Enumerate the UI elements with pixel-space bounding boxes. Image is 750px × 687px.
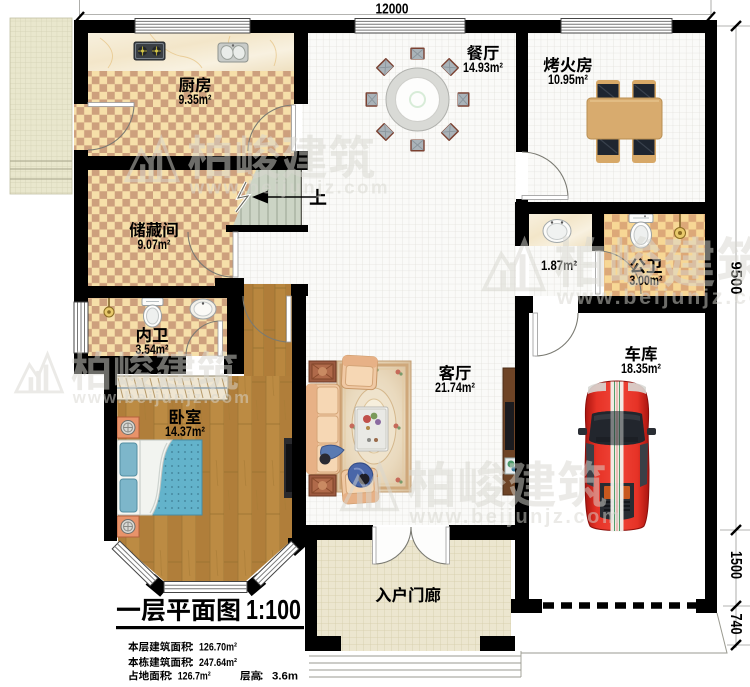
svg-text:14.37m²: 14.37m²: [165, 424, 205, 439]
svg-text:www.beijunjz.com: www.beijunjz.com: [72, 388, 251, 407]
svg-text:247.64m²: 247.64m²: [199, 657, 237, 669]
svg-text:3.6m: 3.6m: [272, 671, 298, 683]
svg-text:10.95m²: 10.95m²: [548, 72, 588, 87]
svg-text:1500: 1500: [727, 551, 744, 579]
svg-text:9.07m²: 9.07m²: [138, 237, 171, 252]
svg-text:14.93m²: 14.93m²: [463, 60, 503, 75]
svg-text:740: 740: [727, 614, 744, 635]
svg-text:www.beijunjz.com: www.beijunjz.com: [556, 284, 750, 309]
svg-text:126.7m²: 126.7m²: [178, 671, 211, 683]
svg-text:1:100: 1:100: [246, 594, 301, 625]
svg-text:www.beijunjz.com: www.beijunjz.com: [188, 176, 390, 197]
svg-text:www.beijunjz.com: www.beijunjz.com: [409, 506, 623, 528]
svg-text:9.35m²: 9.35m²: [179, 92, 212, 107]
svg-text:126.70m²: 126.70m²: [199, 642, 237, 654]
svg-text:18.35m²: 18.35m²: [621, 361, 661, 376]
svg-text:12000: 12000: [376, 2, 409, 18]
svg-text:21.74m²: 21.74m²: [435, 380, 475, 395]
